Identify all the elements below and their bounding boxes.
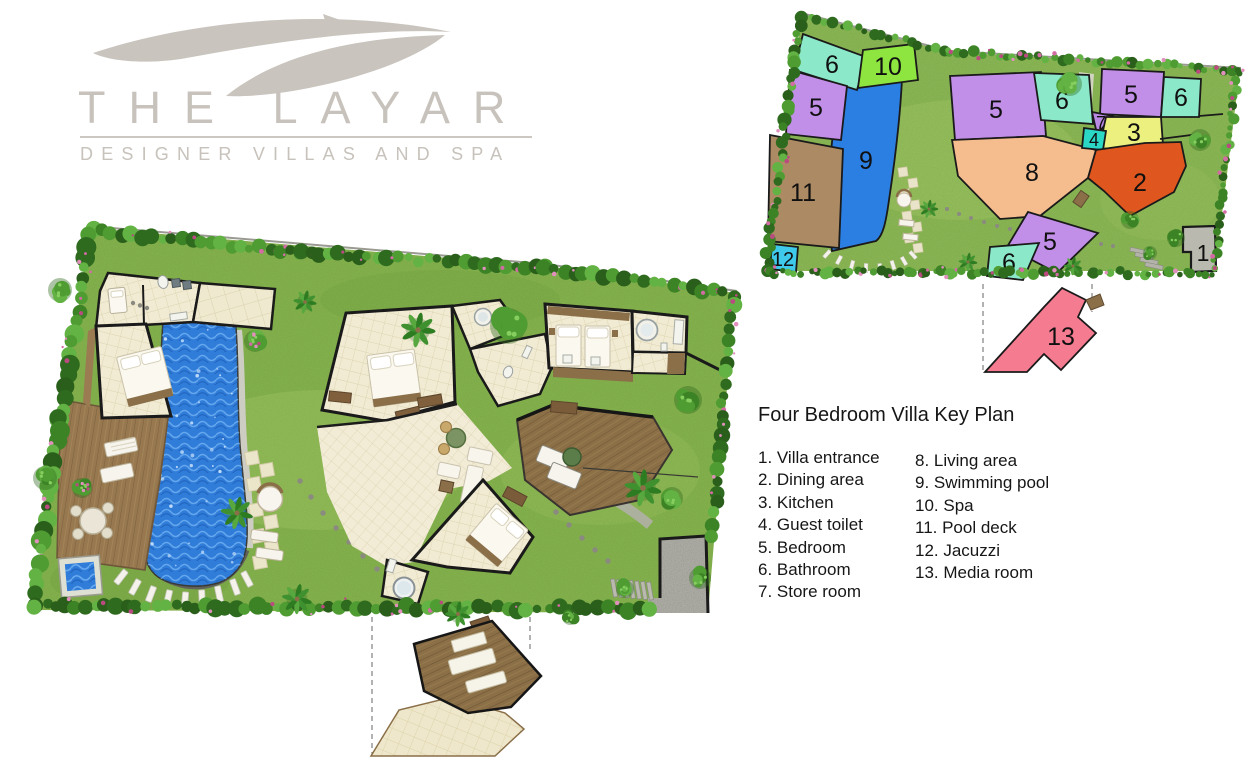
twin-bedroom — [545, 304, 633, 382]
flower-icon — [67, 597, 71, 601]
flower-icon — [252, 332, 256, 336]
flower-icon — [129, 609, 134, 614]
basin — [171, 278, 180, 287]
hedge-bush-icon — [845, 268, 853, 276]
hedge-bush-icon — [724, 311, 736, 323]
sun-lounger — [899, 219, 915, 227]
hedge-bush-icon — [1085, 57, 1091, 63]
hedge-bush-icon — [238, 603, 250, 615]
flower-icon — [45, 505, 50, 510]
flower-icon — [949, 50, 953, 54]
side-table — [549, 328, 555, 335]
svg-text:9: 9 — [859, 147, 873, 175]
hedge-bush-icon — [908, 268, 917, 277]
flower-icon — [1173, 269, 1178, 274]
flower-icon — [1024, 54, 1028, 58]
flower-icon — [1052, 268, 1056, 272]
flower-icon — [1018, 51, 1023, 56]
hedge-bush-icon — [433, 254, 441, 262]
flower-icon — [61, 346, 63, 348]
svg-text:2: 2 — [1133, 169, 1147, 197]
flower-icon — [1020, 268, 1024, 272]
hedge-bush-icon — [75, 281, 87, 293]
flower-icon — [500, 266, 504, 270]
garden-tile — [898, 167, 908, 177]
hedge-bush-icon — [36, 544, 46, 554]
hedge-bush-icon — [1185, 268, 1195, 278]
flower-icon — [1221, 71, 1225, 75]
hedge-bush-icon — [724, 324, 735, 335]
hedge-bush-icon — [786, 74, 795, 83]
hedge-bush-icon — [27, 600, 42, 615]
flower-icon — [719, 434, 722, 437]
flower-icon — [1241, 69, 1244, 72]
flower-icon — [1227, 144, 1232, 149]
flower-icon — [612, 610, 615, 613]
coffee-table — [439, 480, 454, 493]
keyplan-room-spa: 10 — [858, 44, 918, 88]
garden-tile — [910, 200, 920, 210]
svg-text:8: 8 — [1025, 159, 1039, 187]
hedge-bush-icon — [957, 266, 966, 275]
flower-icon — [1223, 156, 1228, 161]
flower-icon — [715, 288, 717, 290]
hedge-bush-icon — [860, 267, 866, 273]
svg-text:6: 6 — [1174, 84, 1188, 112]
flower-icon — [35, 539, 39, 543]
keyplan-room-bathroom: 6 — [1161, 77, 1201, 117]
hedge-bush-icon — [143, 228, 159, 244]
hedge-bush-icon — [679, 281, 688, 290]
floor-plan-canvas: 9 6 10 5 11 12 5 6 5 6 8 7 — [0, 0, 1250, 757]
flower-icon — [735, 294, 738, 297]
hedge-bush-icon — [1227, 125, 1232, 130]
flower-icon — [813, 268, 817, 272]
flower-icon — [792, 39, 795, 42]
hedge-bush-icon — [160, 599, 171, 610]
hedge-bush-icon — [774, 177, 783, 186]
flower-icon — [89, 270, 92, 273]
garden-tile — [259, 462, 274, 477]
hedge-bush-icon — [709, 462, 724, 477]
hedge-bush-icon — [959, 49, 968, 58]
flower-icon — [722, 423, 725, 426]
hedge-bush-icon — [140, 602, 150, 612]
chair — [441, 422, 452, 433]
flower-icon — [192, 235, 196, 239]
hedge-bush-icon — [716, 398, 726, 408]
bush-icon — [54, 281, 70, 297]
hedge-bush-icon — [637, 275, 650, 288]
flower-icon — [82, 489, 85, 492]
flower-icon — [1052, 51, 1056, 55]
hedge-bush-icon — [773, 187, 782, 196]
garden-tile — [908, 178, 918, 188]
hedge-bush-icon — [1215, 220, 1224, 229]
flower-icon — [1011, 58, 1014, 61]
flower-icon — [77, 260, 81, 264]
keyplan-room-bedroom: 5 — [1100, 69, 1164, 117]
svg-text:4: 4 — [1089, 130, 1099, 150]
hedge-bush-icon — [717, 286, 727, 296]
flower-icon — [1055, 273, 1058, 276]
flower-icon — [1231, 66, 1234, 69]
round-daybed — [258, 484, 283, 512]
hedge-bush-icon — [1221, 164, 1228, 171]
hedge-bush-icon — [1215, 240, 1223, 248]
keyplan-room-guest-toilet: 4 — [1082, 128, 1106, 150]
brochure-page: { "brand": { "name": "THE LAYAR", "tagli… — [0, 0, 1250, 757]
hedge-bush-icon — [896, 267, 905, 276]
hedge-bush-icon — [103, 226, 117, 240]
hedge-bush-icon — [724, 347, 734, 357]
flower-icon — [1217, 171, 1221, 175]
vanity — [673, 320, 684, 345]
flower-icon — [321, 605, 325, 609]
flower-icon — [270, 602, 274, 606]
basin — [182, 280, 191, 289]
hedge-bush-icon — [787, 55, 800, 68]
spa-terrace — [193, 283, 275, 329]
flower-icon — [209, 609, 213, 613]
hedge-bush-icon — [405, 253, 413, 261]
flower-icon — [776, 129, 779, 132]
flower-icon — [730, 299, 735, 304]
key-plan: 9 6 10 5 11 12 5 6 5 6 8 7 — [760, 11, 1245, 372]
store-room — [632, 352, 686, 374]
flower-icon — [1210, 254, 1215, 259]
hedge-bush-icon — [722, 334, 736, 348]
hedge-bush-icon — [1215, 200, 1225, 210]
master-bedroom-right — [322, 306, 455, 422]
flower-icon — [552, 272, 557, 277]
jacuzzi — [58, 555, 102, 597]
hedge-bush-icon — [1064, 271, 1070, 277]
hedge-bush-icon — [1220, 182, 1226, 188]
hedge-bush-icon — [1143, 59, 1154, 70]
flower-icon — [790, 82, 795, 87]
hedge-bush-icon — [1213, 228, 1221, 236]
hedge-bush-icon — [885, 35, 893, 43]
hedge-bush-icon — [1228, 113, 1239, 124]
hedge-bush-icon — [1146, 272, 1152, 278]
flower-icon — [344, 597, 346, 599]
hedge-bush-icon — [892, 34, 898, 40]
garden-tile — [244, 450, 259, 465]
hedge-bush-icon — [1170, 59, 1179, 68]
flower-icon — [1105, 271, 1108, 274]
hedge-bush-icon — [1177, 272, 1183, 278]
svg-text:10: 10 — [874, 53, 902, 81]
flower-icon — [941, 266, 944, 269]
hedge-bush-icon — [705, 530, 718, 543]
flower-icon — [572, 269, 575, 272]
hedge-bush-icon — [712, 449, 727, 464]
hedge-bush-icon — [1134, 271, 1140, 277]
side-table — [612, 330, 618, 337]
hedge-bush-icon — [793, 30, 800, 37]
flower-icon — [1196, 69, 1200, 73]
sun-lounger — [903, 233, 919, 241]
bench — [551, 401, 578, 414]
svg-text:6: 6 — [825, 51, 839, 79]
hedge-bush-icon — [413, 257, 424, 268]
flower-icon — [557, 604, 560, 607]
flower-icon — [999, 54, 1003, 58]
svg-text:1: 1 — [1197, 240, 1210, 266]
flower-icon — [1158, 273, 1161, 276]
flower-icon — [1214, 65, 1219, 70]
hedge-bush-icon — [980, 267, 989, 276]
hedge-bush-icon — [78, 600, 93, 615]
hedge-bush-icon — [480, 602, 492, 614]
hedge-bush-icon — [875, 30, 885, 40]
flower-icon — [976, 56, 980, 60]
hedge-bush-icon — [719, 364, 733, 378]
hedge-bush-icon — [1209, 272, 1214, 277]
hedge-bush-icon — [708, 506, 719, 517]
hedge-bush-icon — [213, 236, 227, 250]
svg-text:5: 5 — [809, 94, 823, 122]
flower-icon — [766, 221, 770, 225]
flower-icon — [1162, 58, 1166, 62]
flower-icon — [254, 345, 258, 349]
flower-icon — [1127, 61, 1130, 64]
chair — [439, 444, 450, 455]
flower-icon — [988, 49, 990, 51]
bush-icon — [1167, 230, 1180, 243]
hedge-bush-icon — [855, 23, 862, 30]
hedge-bush-icon — [843, 20, 853, 30]
garden-steps — [1086, 294, 1104, 310]
flower-icon — [701, 291, 705, 295]
hedge-bush-icon — [1111, 56, 1122, 67]
flower-icon — [86, 483, 89, 486]
hedge-bush-icon — [1123, 270, 1133, 280]
hedge-bush-icon — [968, 45, 980, 57]
hedge-bush-icon — [362, 252, 371, 261]
hedge-bush-icon — [1196, 271, 1202, 277]
hedge-bush-icon — [794, 37, 802, 45]
hedge-bush-icon — [165, 233, 176, 244]
bush-icon — [1061, 72, 1077, 88]
flower-icon — [1223, 210, 1227, 214]
hedge-bush-icon — [720, 379, 731, 390]
hedge-bush-icon — [883, 268, 893, 278]
flower-icon — [728, 309, 731, 312]
hedge-bush-icon — [1177, 63, 1182, 68]
flower-icon — [944, 275, 948, 279]
hedge-bush-icon — [172, 600, 182, 610]
flower-icon — [395, 604, 399, 608]
flower-icon — [1101, 61, 1104, 64]
flower-icon — [75, 483, 78, 486]
hedge-bush-icon — [779, 122, 788, 131]
flower-icon — [283, 253, 286, 256]
hedge-bush-icon — [1226, 132, 1232, 138]
hedge-bush-icon — [790, 270, 797, 277]
hedge-bush-icon — [392, 251, 404, 263]
hedge-bush-icon — [776, 137, 788, 149]
svg-text:5: 5 — [989, 96, 1003, 124]
flower-icon — [101, 601, 106, 606]
flower-icon — [734, 322, 739, 327]
stool — [563, 355, 572, 363]
round-table — [563, 448, 581, 466]
flower-icon — [169, 231, 172, 234]
flower-icon — [310, 613, 312, 615]
bed — [367, 349, 422, 407]
flower-icon — [1230, 96, 1234, 100]
hedge-bush-icon — [783, 90, 794, 101]
flower-icon — [390, 256, 393, 259]
flower-icon — [784, 159, 789, 164]
hedge-bush-icon — [827, 17, 839, 29]
hedge-bush-icon — [1063, 54, 1074, 65]
hedge-bush-icon — [357, 600, 372, 615]
hedge-bush-icon — [861, 28, 867, 34]
flower-icon — [733, 352, 735, 354]
flower-icon — [926, 269, 929, 272]
hedge-bush-icon — [533, 605, 541, 613]
hedge-bush-icon — [1154, 60, 1162, 68]
flower-icon — [615, 601, 619, 605]
flower-icon — [483, 267, 486, 270]
hedge-bush-icon — [772, 162, 783, 173]
main-floor-plan — [27, 221, 743, 756]
hedge-bush-icon — [642, 602, 657, 617]
flower-icon — [1076, 58, 1080, 62]
flower-icon — [775, 272, 778, 275]
svg-text:13: 13 — [1047, 323, 1075, 351]
flower-icon — [1229, 108, 1232, 111]
hedge-bush-icon — [1201, 67, 1207, 73]
hedge-bush-icon — [760, 247, 772, 259]
hedge-bush-icon — [657, 278, 667, 288]
flower-icon — [515, 606, 517, 608]
flower-icon — [440, 601, 444, 605]
flower-icon — [81, 482, 84, 485]
flower-icon — [712, 475, 716, 479]
media-room-plan — [371, 616, 541, 756]
flower-icon — [1037, 53, 1041, 57]
svg-text:5: 5 — [1043, 228, 1057, 256]
hedge-bush-icon — [1004, 265, 1015, 276]
garden-tile — [913, 243, 923, 253]
flower-icon — [710, 491, 713, 494]
flower-icon — [42, 497, 47, 502]
stool — [591, 357, 600, 365]
flower-icon — [341, 251, 344, 254]
keyplan-room-media-room: 13 — [985, 288, 1096, 372]
hedge-bush-icon — [518, 603, 533, 618]
keyplan-room-bedroom: 5 — [950, 72, 1046, 140]
flower-icon — [360, 259, 362, 261]
hedge-bush-icon — [234, 240, 247, 253]
svg-text:5: 5 — [1124, 81, 1138, 109]
flower-icon — [79, 311, 83, 315]
flower-icon — [257, 342, 261, 346]
flower-icon — [398, 609, 402, 613]
hedge-bush-icon — [870, 268, 877, 275]
hedge-bush-icon — [811, 15, 821, 25]
round-daybed — [897, 193, 911, 207]
hedge-bush-icon — [797, 271, 804, 278]
flower-icon — [770, 234, 775, 239]
flower-icon — [64, 358, 69, 363]
svg-text:11: 11 — [790, 179, 816, 207]
hedge-bush-icon — [1201, 271, 1209, 279]
hedge-bush-icon — [931, 43, 941, 53]
toilet — [661, 343, 667, 351]
hedge-bush-icon — [912, 41, 922, 51]
flower-icon — [1229, 81, 1233, 85]
hedge-bush-icon — [1042, 56, 1049, 63]
bench — [329, 391, 352, 403]
flower-icon — [259, 249, 264, 254]
flower-icon — [86, 487, 89, 490]
bathroom-twin — [632, 311, 687, 353]
hedge-bush-icon — [769, 270, 778, 279]
flower-icon — [249, 342, 253, 346]
flower-icon — [132, 234, 134, 236]
hedge-bush-icon — [1097, 269, 1103, 275]
hedge-bush-icon — [1028, 269, 1039, 280]
garden-tile — [263, 514, 278, 529]
hedge-bush-icon — [768, 208, 779, 219]
hedge-bush-icon — [245, 245, 253, 253]
flower-icon — [65, 338, 67, 340]
hedge-bush-icon — [409, 603, 424, 618]
svg-text:3: 3 — [1127, 119, 1141, 147]
hedge-bush-icon — [65, 335, 78, 348]
flower-icon — [889, 275, 891, 277]
flower-icon — [1213, 266, 1217, 270]
flower-icon — [84, 252, 87, 255]
flower-icon — [79, 297, 82, 300]
